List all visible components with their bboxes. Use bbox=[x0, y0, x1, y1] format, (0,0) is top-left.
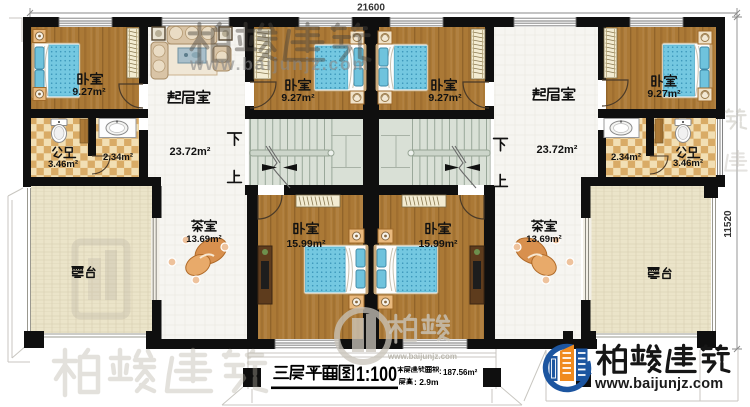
svg-text:www.baijunjz.com: www.baijunjz.com bbox=[594, 376, 723, 392]
svg-text:13.69m²: 13.69m² bbox=[526, 234, 561, 245]
svg-text:9.27m²: 9.27m² bbox=[647, 88, 681, 100]
svg-text:11520: 11520 bbox=[723, 210, 734, 238]
svg-text::: : bbox=[439, 367, 442, 376]
svg-text:3.46m²: 3.46m² bbox=[48, 159, 78, 170]
svg-text:13.69m²: 13.69m² bbox=[186, 234, 221, 245]
svg-text:187.56m²: 187.56m² bbox=[443, 368, 478, 377]
svg-text:9.27m²: 9.27m² bbox=[428, 92, 462, 104]
svg-text:www.baijunjz.com: www.baijunjz.com bbox=[387, 352, 457, 361]
svg-text:: 2.9m: : 2.9m bbox=[414, 377, 439, 387]
svg-text:1:100: 1:100 bbox=[356, 363, 397, 386]
svg-text:9.27m²: 9.27m² bbox=[72, 86, 106, 98]
svg-text:15.99m²: 15.99m² bbox=[418, 238, 458, 250]
svg-text:www.baijunjz.com: www.baijunjz.com bbox=[189, 54, 370, 74]
svg-text:15.99m²: 15.99m² bbox=[286, 238, 326, 250]
svg-text:9.27m²: 9.27m² bbox=[281, 92, 315, 104]
svg-text:2.34m²: 2.34m² bbox=[103, 152, 133, 163]
svg-text:23.72m²: 23.72m² bbox=[537, 144, 578, 156]
svg-text:2.34m²: 2.34m² bbox=[611, 152, 641, 163]
svg-text:21600: 21600 bbox=[357, 3, 385, 14]
svg-text:3.46m²: 3.46m² bbox=[673, 158, 703, 169]
svg-text:23.72m²: 23.72m² bbox=[170, 146, 211, 158]
